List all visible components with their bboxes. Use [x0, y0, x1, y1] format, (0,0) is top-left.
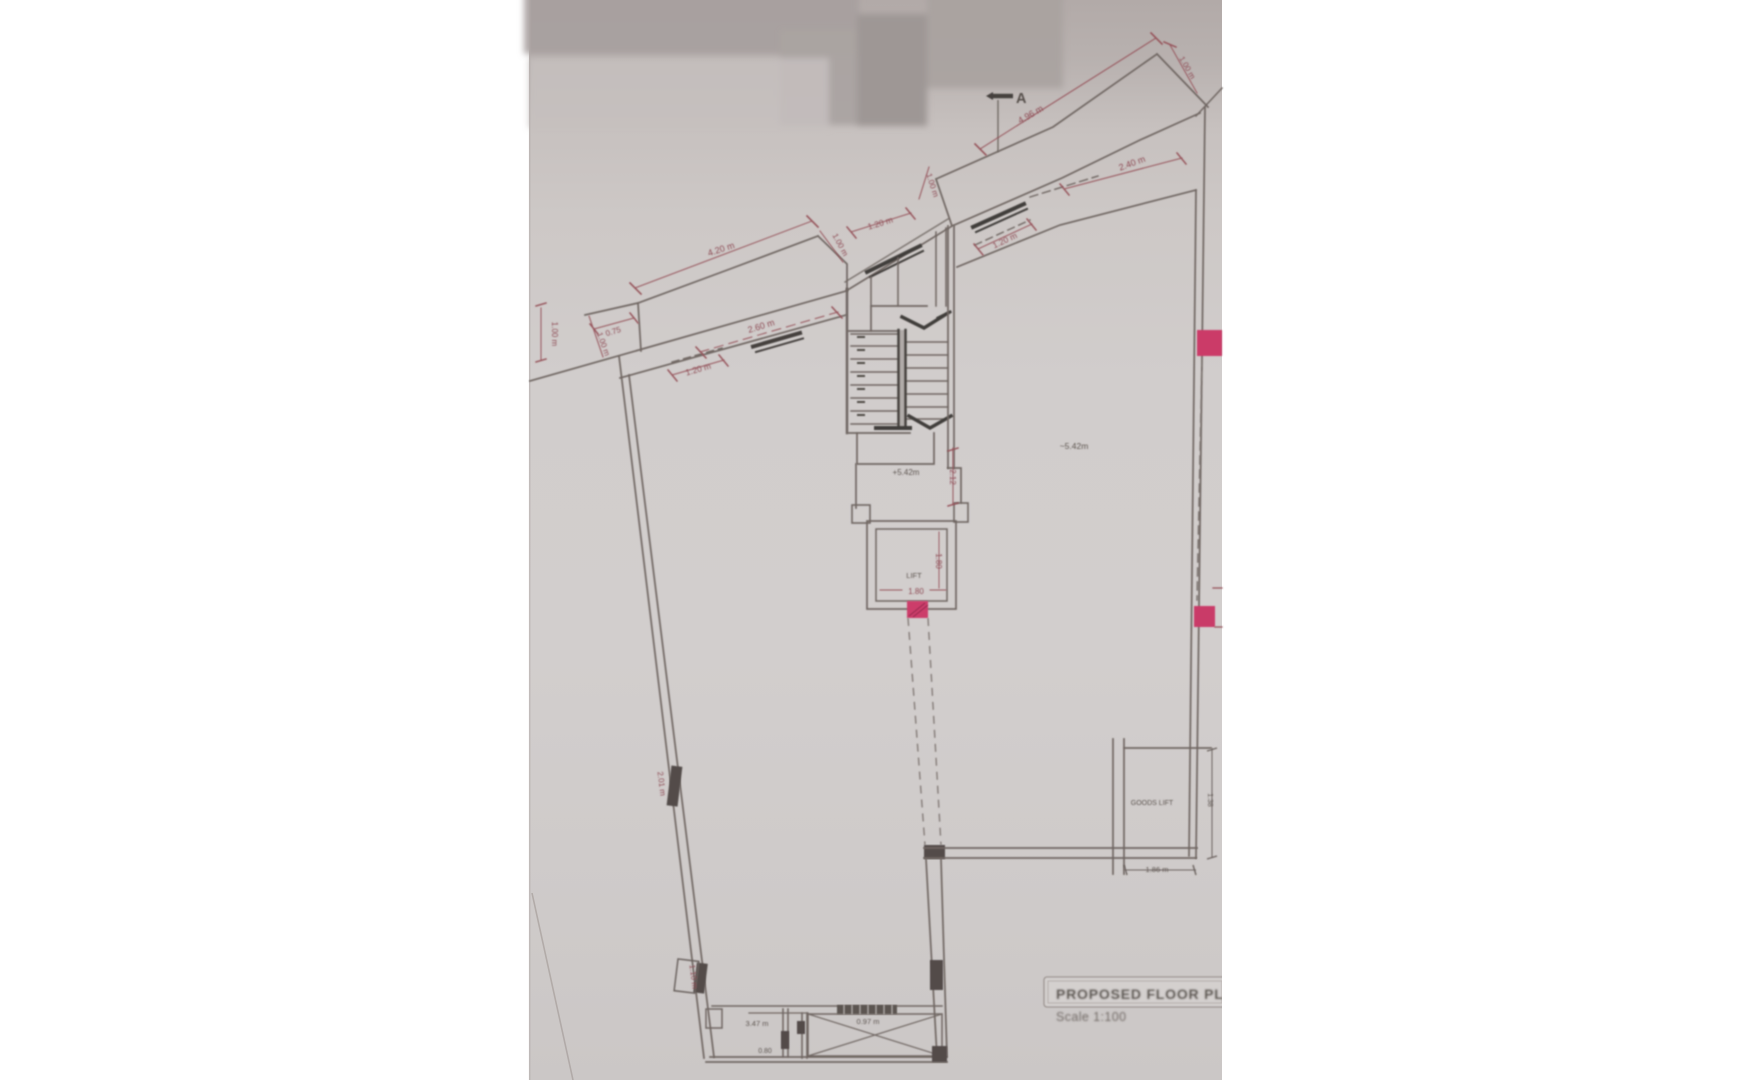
svg-text:A: A — [1016, 91, 1027, 107]
svg-text:PROPOSED FLOOR PL: PROPOSED FLOOR PL — [1056, 986, 1224, 1002]
svg-text:3.47 m: 3.47 m — [746, 1019, 769, 1028]
svg-text:1.86 m: 1.86 m — [1146, 865, 1169, 874]
svg-text:2.12: 2.12 — [948, 469, 957, 485]
svg-text:+5.42m: +5.42m — [893, 468, 920, 477]
svg-text:1.00 m: 1.00 m — [550, 322, 559, 347]
svg-text:1.38: 1.38 — [1206, 793, 1213, 807]
svg-text:Scale 1:100: Scale 1:100 — [1056, 1010, 1126, 1024]
svg-text:LIFT: LIFT — [906, 571, 922, 580]
svg-text:1.80: 1.80 — [908, 587, 924, 596]
svg-text:1.80: 1.80 — [934, 553, 943, 569]
svg-text:GOODS LIFT: GOODS LIFT — [1131, 800, 1174, 807]
svg-text:0.97 m: 0.97 m — [857, 1017, 880, 1026]
svg-text:0.80: 0.80 — [758, 1048, 772, 1055]
svg-text:~5.42m: ~5.42m — [1060, 441, 1089, 451]
